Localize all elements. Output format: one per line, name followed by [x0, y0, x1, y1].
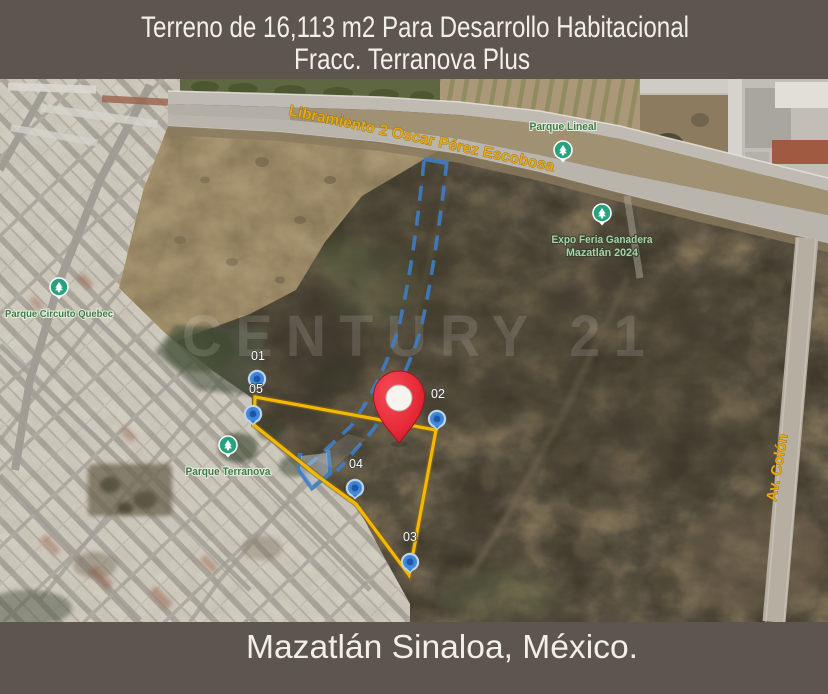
svg-text:01: 01	[251, 349, 265, 363]
svg-text:Expo Feria Ganadera: Expo Feria Ganadera	[552, 234, 654, 246]
svg-text:02: 02	[431, 387, 445, 401]
svg-text:Terreno de 16,113 m2 Para Desa: Terreno de 16,113 m2 Para Desarrollo Hab…	[141, 11, 689, 44]
svg-text:Parque Terranova: Parque Terranova	[186, 466, 272, 478]
svg-text:Mazatlán 2024: Mazatlán 2024	[566, 247, 639, 259]
svg-text:Parque Circuito Quebec: Parque Circuito Quebec	[5, 308, 113, 320]
svg-text:04: 04	[349, 457, 363, 471]
svg-text:03: 03	[403, 530, 417, 544]
svg-text:Fracc. Terranova Plus: Fracc. Terranova Plus	[294, 43, 530, 76]
svg-text:05: 05	[249, 382, 263, 396]
svg-text:Mazatlán Sinaloa, México.: Mazatlán Sinaloa, México.	[246, 628, 638, 665]
svg-text:Parque Lineal: Parque Lineal	[530, 121, 597, 133]
